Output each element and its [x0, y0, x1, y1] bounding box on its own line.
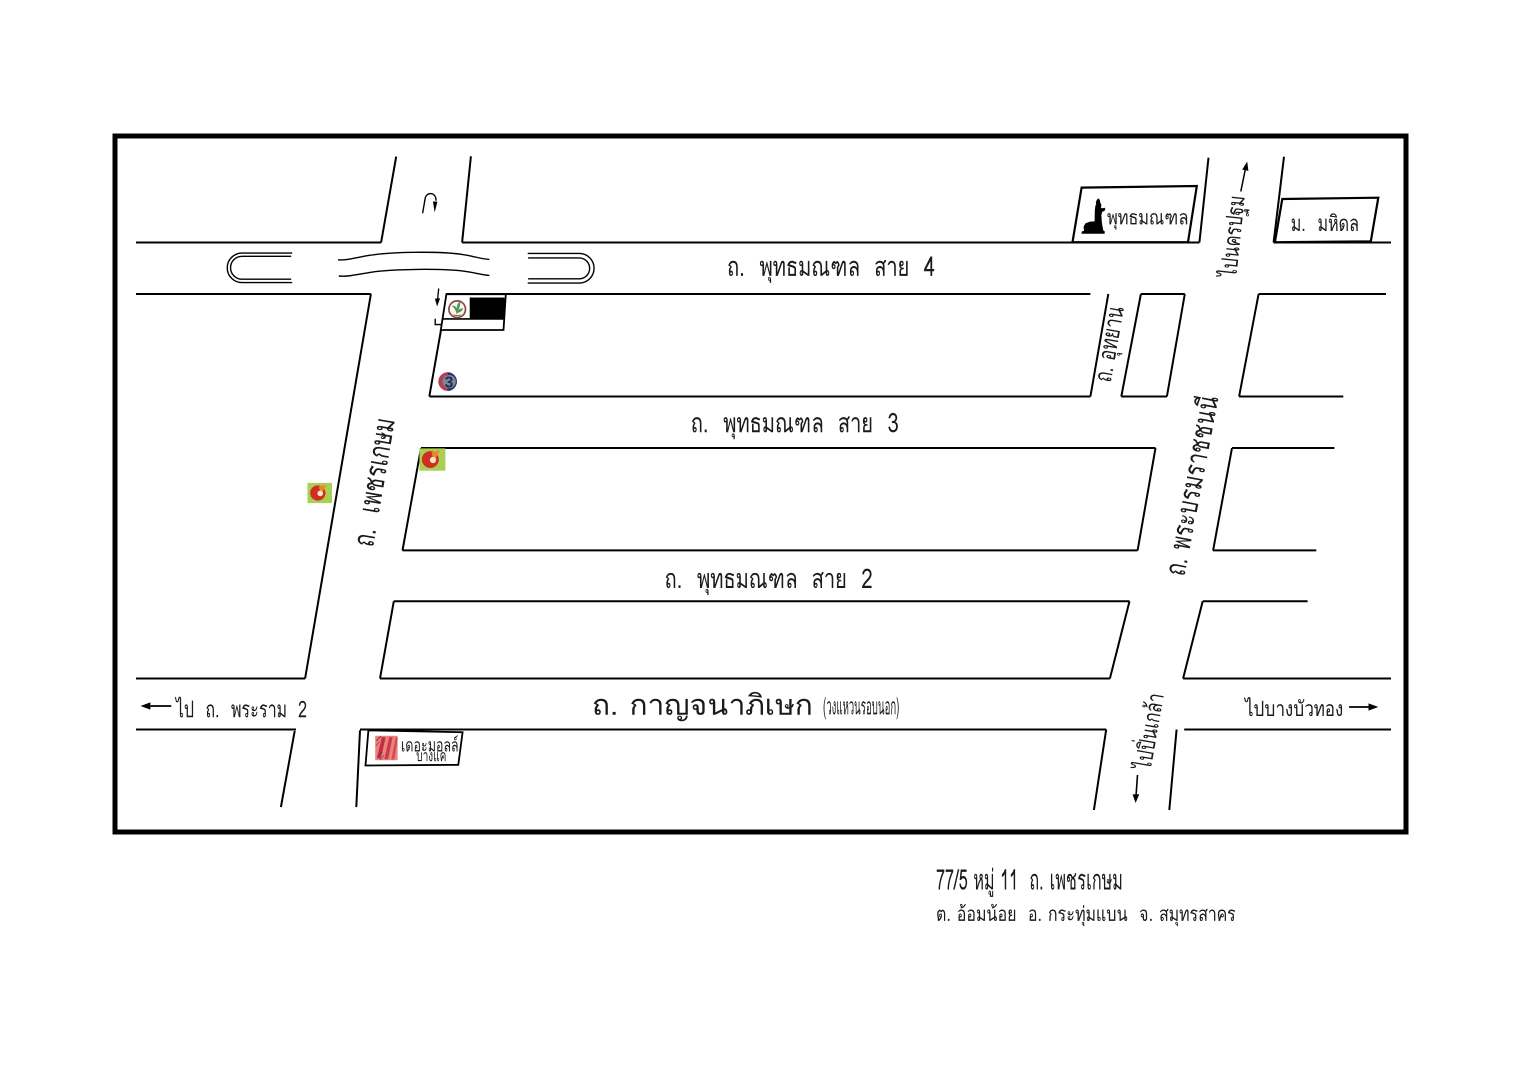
svg-text:3: 3 — [444, 375, 453, 392]
